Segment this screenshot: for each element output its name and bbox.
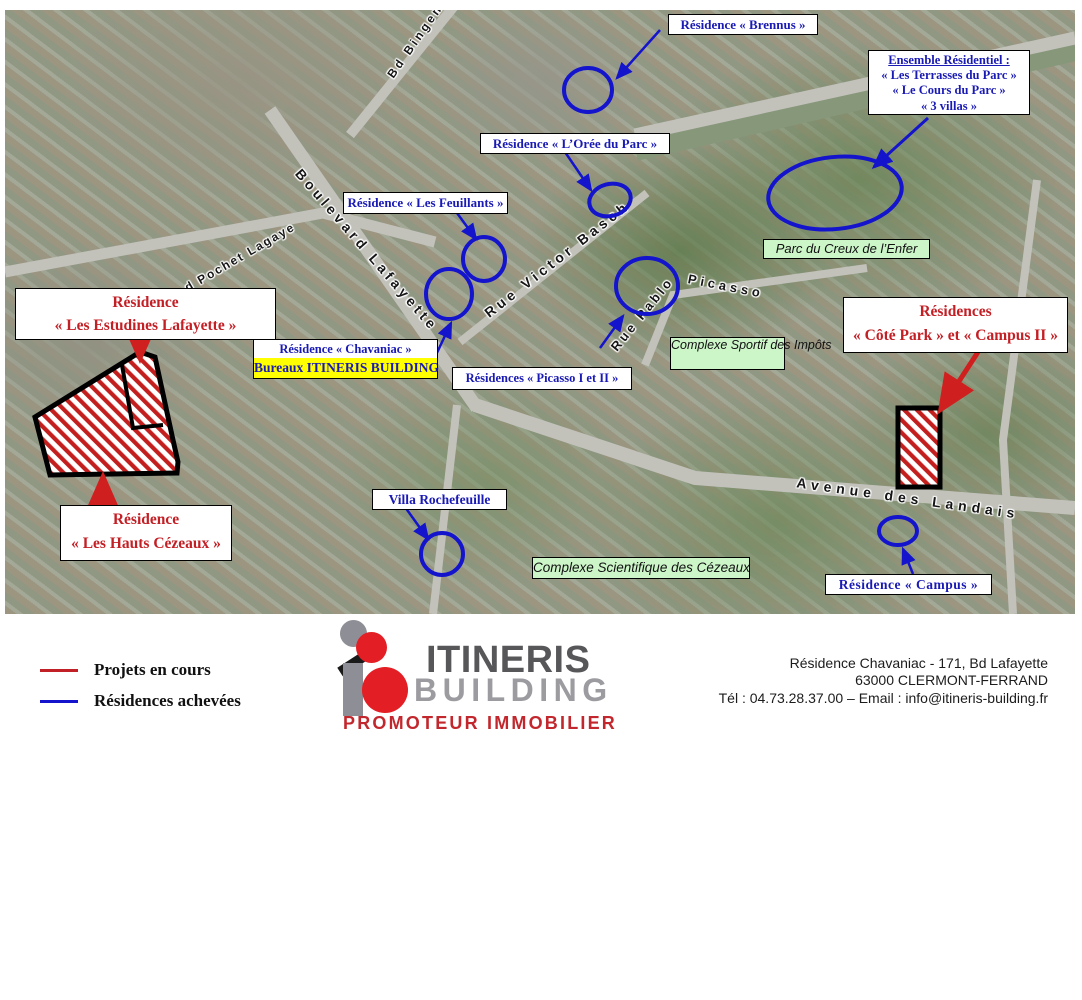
contact-phone-email-line: Tél : 04.73.28.37.00 – Email : info@itin… xyxy=(719,690,1048,707)
ellipse-campus xyxy=(879,517,917,545)
logo-gray-stem-icon xyxy=(343,663,363,716)
ellipse-feuillants xyxy=(463,237,505,281)
label-bureaux-itineris: Bureaux ITINERIS BUILDING xyxy=(254,358,437,378)
arrow-feuillants xyxy=(457,213,476,239)
arrow-villa xyxy=(405,507,428,539)
contact-block: Résidence Chavaniac - 171, Bd Lafayette … xyxy=(719,655,1048,707)
label-estudines-line2: « Les Estudines Lafayette » xyxy=(16,314,275,337)
arrow-oree xyxy=(565,152,591,190)
label-picasso-residences: Résidences « Picasso I et II » xyxy=(452,367,632,390)
ellipse-brennus xyxy=(564,68,612,112)
ellipse-chavaniac xyxy=(426,269,472,319)
label-hauts-line2: « Les Hauts Cézeaux » xyxy=(61,532,231,556)
label-hauts-line1: Résidence xyxy=(61,508,231,532)
label-cote-park-line2: « Côté Park » et « Campus II » xyxy=(844,324,1067,348)
label-feuillants: Résidence « Les Feuillants » xyxy=(343,192,508,214)
aerial-map: Bd Bingen Boulevard Lafayette Rue Victor… xyxy=(5,10,1075,614)
label-estudines: Résidence « Les Estudines Lafayette » xyxy=(15,288,276,340)
label-chavaniac: Résidence « Chavaniac » xyxy=(254,340,437,358)
arrow-campus xyxy=(903,549,913,574)
arrow-cote-park xyxy=(943,352,978,406)
legend-item-achevees: Résidences achevées xyxy=(40,691,241,711)
ellipse-oree xyxy=(586,179,635,221)
legend-blue-line xyxy=(40,700,78,703)
project-zone-estudines xyxy=(35,352,178,475)
label-cote-park: Résidences « Côté Park » et « Campus II … xyxy=(843,297,1068,353)
label-cote-park-line1: Résidences xyxy=(844,300,1067,324)
label-campus: Résidence « Campus » xyxy=(825,574,992,595)
logo-red-dot-small-icon xyxy=(356,632,387,663)
logo-red-dot-large-icon xyxy=(362,667,408,713)
label-oree: Résidence « L’Orée du Parc » xyxy=(480,133,670,154)
legend-red-line xyxy=(40,669,78,672)
contact-address-line: Résidence Chavaniac - 171, Bd Lafayette xyxy=(719,655,1048,672)
label-sportif-line2: des Impôts xyxy=(770,338,831,352)
label-estudines-line1: Résidence xyxy=(16,291,275,314)
label-complexe-scientifique: Complexe Scientifique des Cézeaux xyxy=(532,557,750,579)
label-parc-creux: Parc du Creux de l’Enfer xyxy=(763,239,930,259)
label-ensemble-line2: « Le Cours du Parc » xyxy=(869,83,1029,98)
label-ensemble: Ensemble Résidentiel : « Les Terrasses d… xyxy=(868,50,1030,115)
label-ensemble-line3: « 3 villas » xyxy=(869,99,1029,114)
label-ensemble-line1: « Les Terrasses du Parc » xyxy=(869,68,1029,83)
ellipse-picasso xyxy=(616,258,678,314)
legend-achevees-label: Résidences achevées xyxy=(94,691,241,711)
project-zone-cote-park xyxy=(898,408,940,487)
label-brennus: Résidence « Brennus » xyxy=(668,14,818,35)
legend-projets-label: Projets en cours xyxy=(94,660,211,680)
logo-name-bottom: BUILDING xyxy=(414,674,613,706)
label-chavaniac-bureaux: Résidence « Chavaniac » Bureaux ITINERIS… xyxy=(253,339,438,379)
logo-tagline: PROMOTEUR IMMOBILIER xyxy=(343,714,617,732)
arrow-picasso xyxy=(600,316,623,348)
label-villa-rochefeuille: Villa Rochefeuille xyxy=(372,489,507,510)
arrow-brennus xyxy=(617,30,660,78)
arrow-ensemble xyxy=(874,118,928,167)
label-sportif-line1: Complexe Sportif xyxy=(671,338,767,352)
ellipse-parc-creux xyxy=(765,150,906,236)
contact-city-line: 63000 CLERMONT-FERRAND xyxy=(719,672,1048,689)
label-ensemble-title: Ensemble Résidentiel : xyxy=(869,53,1029,68)
legend-item-projets: Projets en cours xyxy=(40,660,211,680)
label-hauts-cezeaux: Résidence « Les Hauts Cézeaux » xyxy=(60,505,232,561)
label-complexe-sportif: Complexe Sportif des Impôts xyxy=(670,337,785,370)
